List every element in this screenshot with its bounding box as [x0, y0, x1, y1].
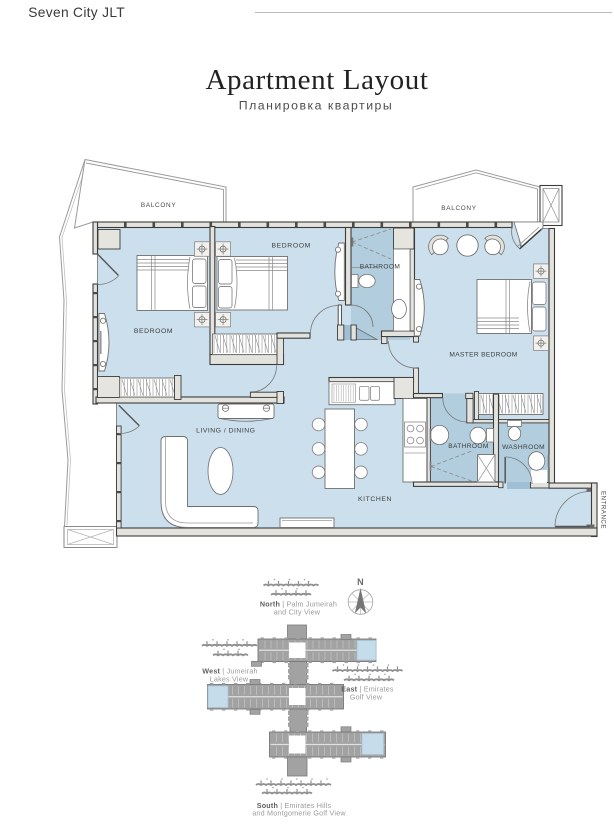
- svg-text:KITCHEN: KITCHEN: [358, 496, 392, 503]
- svg-text:MASTER BEDROOM: MASTER BEDROOM: [449, 351, 517, 358]
- svg-text:and City View: and City View: [274, 608, 321, 617]
- svg-text:BATHROOM: BATHROOM: [448, 443, 488, 450]
- svg-text:BEDROOM: BEDROOM: [134, 328, 173, 335]
- svg-text:BALCONY: BALCONY: [141, 202, 176, 209]
- svg-text:N: N: [357, 577, 364, 587]
- svg-text:WASHROOM: WASHROOM: [502, 444, 545, 451]
- svg-text:BATHROOM: BATHROOM: [360, 264, 400, 271]
- svg-text:Golf View: Golf View: [350, 693, 383, 702]
- svg-text:ENTRANCE: ENTRANCE: [600, 491, 607, 529]
- svg-text:BALCONY: BALCONY: [441, 205, 476, 212]
- svg-text:Планировка квартиры: Планировка квартиры: [239, 99, 394, 113]
- svg-text:and Montgomerie Golf View: and Montgomerie Golf View: [252, 808, 346, 817]
- svg-text:LIVING / DINING: LIVING / DINING: [196, 428, 255, 435]
- svg-text:Lakes View: Lakes View: [210, 675, 249, 684]
- svg-text:Seven City JLT: Seven City JLT: [28, 5, 125, 20]
- svg-text:Apartment Layout: Apartment Layout: [205, 64, 428, 96]
- svg-text:BEDROOM: BEDROOM: [272, 243, 311, 250]
